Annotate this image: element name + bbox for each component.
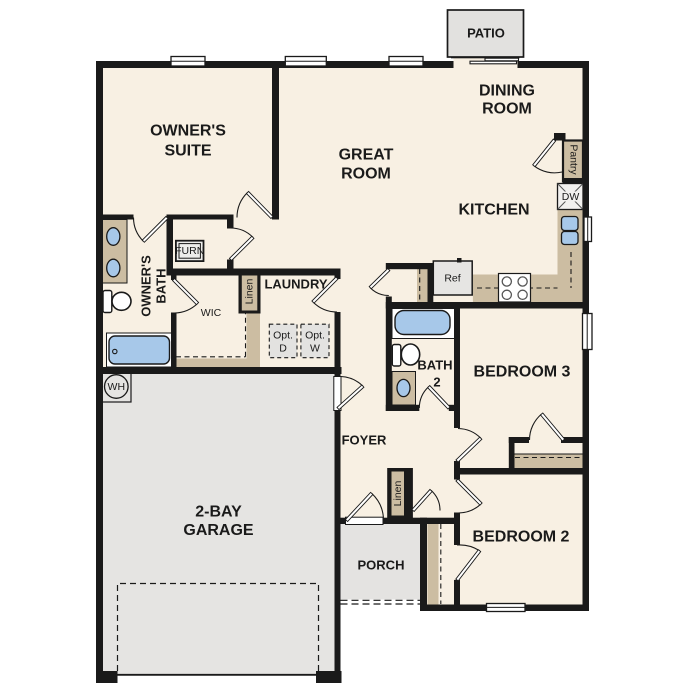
svg-text:W: W (310, 343, 320, 355)
svg-text:2: 2 (433, 375, 440, 390)
svg-text:Linen: Linen (392, 481, 404, 507)
svg-text:BEDROOM 3: BEDROOM 3 (474, 364, 571, 381)
svg-text:ROOM: ROOM (482, 101, 532, 118)
svg-text:BATH: BATH (154, 268, 169, 303)
svg-text:PORCH: PORCH (358, 558, 405, 573)
svg-text:Opt.: Opt. (305, 330, 325, 342)
svg-text:PATIO: PATIO (467, 26, 505, 41)
svg-text:DINING: DINING (479, 83, 535, 100)
svg-text:WIC: WIC (201, 307, 222, 319)
svg-text:Ref: Ref (444, 273, 460, 285)
svg-text:DW: DW (562, 191, 580, 203)
svg-text:BEDROOM 2: BEDROOM 2 (473, 529, 570, 546)
svg-text:WH: WH (108, 381, 126, 393)
svg-text:GREAT: GREAT (339, 147, 394, 164)
svg-text:Opt.: Opt. (273, 330, 293, 342)
svg-text:FURN: FURN (175, 245, 204, 257)
svg-text:BATH: BATH (417, 358, 452, 373)
svg-text:OWNER'S: OWNER'S (150, 123, 226, 140)
svg-text:Linen: Linen (244, 279, 256, 305)
svg-text:SUITE: SUITE (164, 143, 211, 160)
svg-text:Pantry: Pantry (568, 144, 580, 175)
svg-text:LAUNDRY: LAUNDRY (264, 277, 327, 292)
svg-text:KITCHEN: KITCHEN (458, 202, 529, 219)
svg-text:2-BAY: 2-BAY (195, 504, 242, 521)
svg-text:ROOM: ROOM (341, 166, 391, 183)
svg-text:OWNER'S: OWNER'S (139, 255, 154, 317)
svg-text:FOYER: FOYER (342, 433, 387, 448)
svg-text:GARAGE: GARAGE (183, 522, 254, 539)
svg-text:D: D (279, 343, 287, 355)
